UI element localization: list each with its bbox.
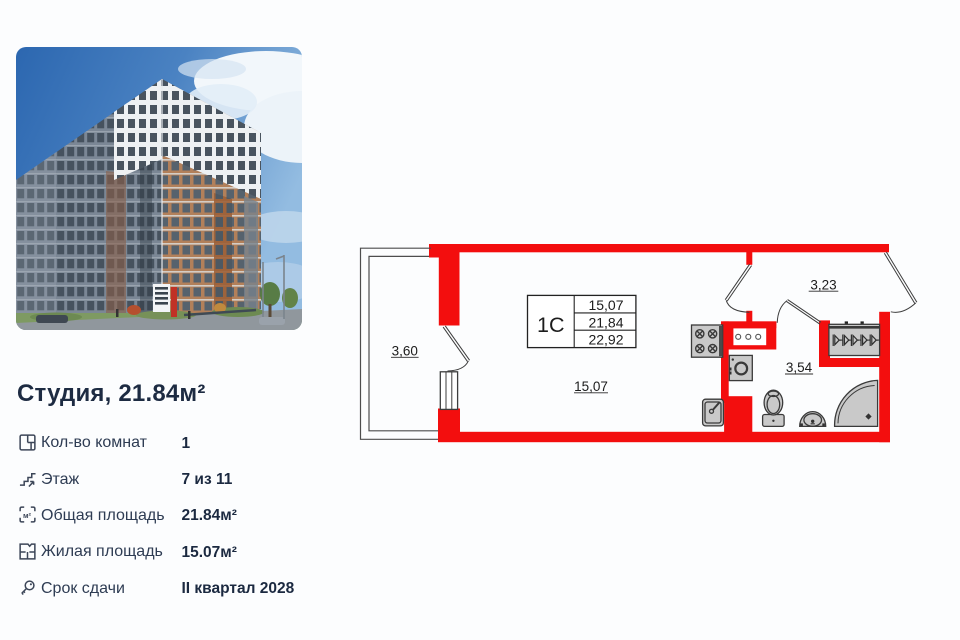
svg-text:15,07: 15,07 <box>574 379 608 394</box>
svg-text:3,23: 3,23 <box>810 277 836 292</box>
svg-text:15,07: 15,07 <box>588 297 623 313</box>
svg-text:22,92: 22,92 <box>588 332 623 348</box>
svg-text:1С: 1С <box>537 313 564 337</box>
svg-text:3,60: 3,60 <box>392 344 418 359</box>
svg-text:21,84: 21,84 <box>588 314 623 330</box>
svg-text:3,54: 3,54 <box>786 360 813 375</box>
